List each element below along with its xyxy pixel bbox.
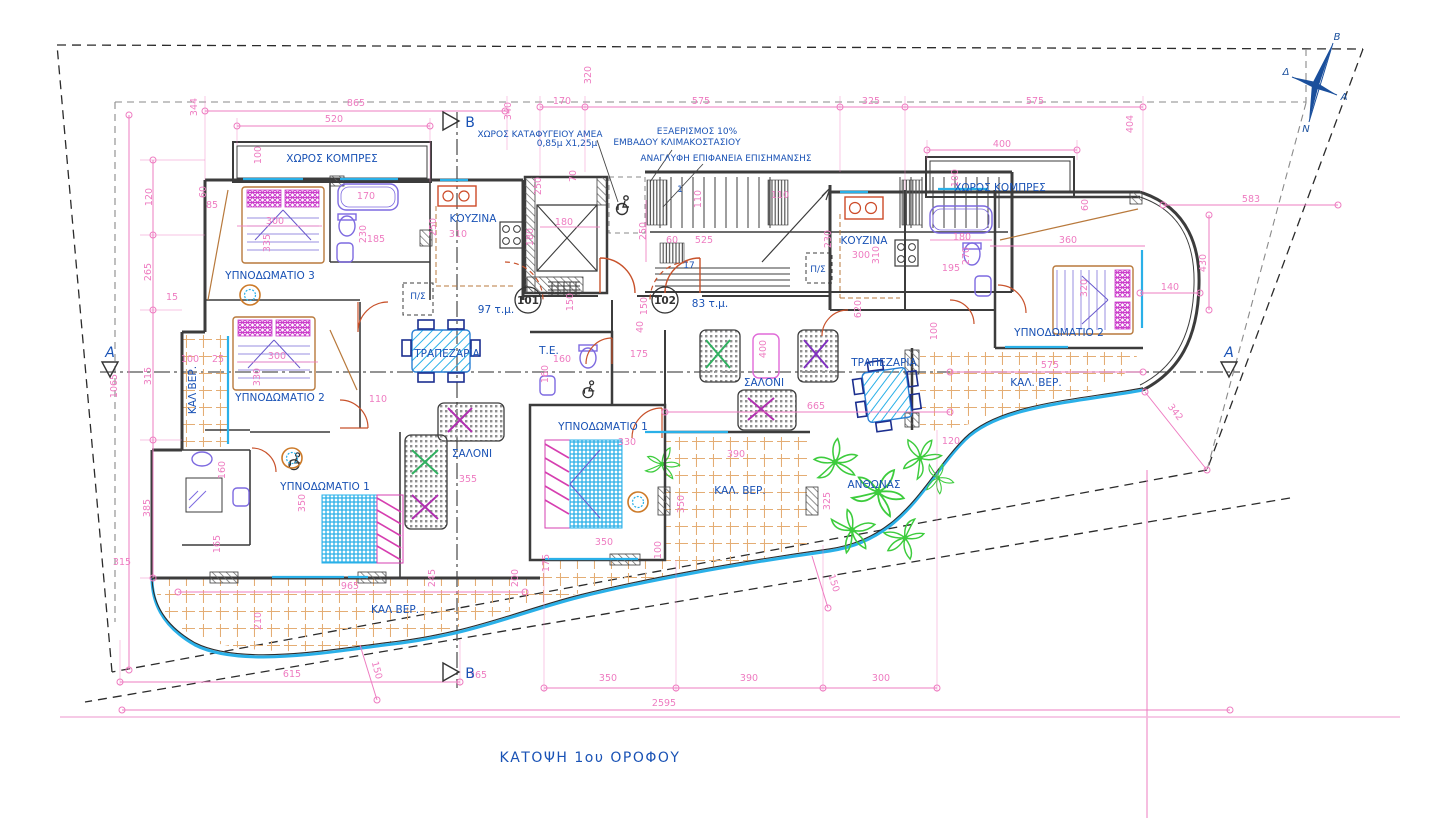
dim: 335 <box>262 234 273 252</box>
dim: 185 <box>367 234 385 245</box>
room-label-kitchen-a: ΚΟΥΖΙΝΑ <box>450 213 498 225</box>
room-label-veranda-right: ΚΑΛ. ΒΕΡ. <box>1010 377 1061 389</box>
dim: 175 <box>541 554 552 572</box>
apartment-102-area: 83 τ.μ. <box>692 298 728 310</box>
bedroom2b-bed <box>1053 266 1133 334</box>
dim: 165 <box>212 535 223 553</box>
room-label-closet-b: Π/Σ <box>810 265 826 275</box>
dim: 965 <box>341 581 359 592</box>
dim: 120 <box>942 436 960 447</box>
dim: 575 <box>1041 360 1059 371</box>
room-label-closet-a: Π/Σ <box>410 292 426 302</box>
compass-north-arrow: Β Ν Α Δ <box>1282 32 1348 135</box>
dim: 320 <box>583 66 594 84</box>
annotation-notes: ΧΩΡΟΣ ΚΑΤΑΦΥΓΕΙΟΥ ΑΜΕΑ 0,85μ Χ1,25μ ΕΞΑΕ… <box>478 127 812 164</box>
dim: 620 <box>853 300 864 318</box>
dim: 310 <box>871 246 882 264</box>
dim: 583 <box>1242 194 1260 205</box>
room-label-bedroom3-a: ΥΠΝΟΔΩΜΑΤΙΟ 3 <box>224 270 315 282</box>
dim: 110 <box>693 190 704 208</box>
dim: 665 <box>807 401 825 412</box>
dim: 404 <box>1125 115 1136 133</box>
section-marker-b-top: B <box>443 112 475 131</box>
dim: 250 <box>533 177 544 195</box>
room-label-compres-left: ΧΩΡΟΣ ΚΟΜΠΡΕΣ <box>286 153 378 165</box>
dim: 390 <box>740 673 758 684</box>
apartment-101-area: 97 τ.μ. <box>478 304 514 316</box>
dim: 100 <box>253 146 264 164</box>
compass-west-label: Δ <box>1282 67 1290 78</box>
dim: 350 <box>595 537 613 548</box>
dim: 160 <box>217 461 228 479</box>
dim: 400 <box>758 340 769 358</box>
dim: 390 <box>727 449 745 460</box>
dim: 265 <box>143 263 154 281</box>
dim: 300 <box>872 673 890 684</box>
dim: 340 <box>503 102 514 120</box>
dim: 195 <box>942 263 960 274</box>
room-label-dining-a: ΤΡΑΠΕΖΑΡΙΑ <box>413 348 480 360</box>
dim: 40 <box>635 321 646 333</box>
dim: 70 <box>568 170 579 182</box>
dim: 60 <box>666 235 678 246</box>
dim: 270 <box>961 247 972 265</box>
dim: 350 <box>676 495 687 513</box>
bedroom1b-bed <box>545 440 622 528</box>
room-label-veranda-left: ΚΑΛ ΒΕΡ. <box>187 366 199 414</box>
dim: 300 <box>266 216 284 227</box>
dim: 430 <box>1198 254 1209 272</box>
dim: 865 <box>347 98 365 109</box>
section-b-top-label: B <box>465 115 475 131</box>
stair-number-first: 1 <box>677 185 683 195</box>
dim: 150 <box>369 660 384 680</box>
dim: 120 <box>144 188 155 206</box>
bedroom1a-bed <box>322 495 403 563</box>
note-vent-line1: ΕΞΑΕΡΙΣΜΟΣ 10% <box>657 127 738 137</box>
apartment-102-number: 102 <box>654 295 676 307</box>
note-tactile: ΑΝΑΓΛΥΦΗ ΕΠΙΦΑΝΕΙΑ ΕΠΙΣΗΜΑΝΣΗΣ <box>640 154 812 164</box>
dim: 575 <box>692 96 710 107</box>
dim: 180 <box>953 232 971 243</box>
dim: 320 <box>1079 279 1090 297</box>
dim: 385 <box>142 499 153 517</box>
room-label-bedroom2-a: ΥΠΝΟΔΩΜΑΤΙΟ 2 <box>234 392 325 404</box>
dim: 100 <box>950 169 961 187</box>
dim: 180 <box>525 228 536 246</box>
room-label-veranda-mid: ΚΑΛ. ΒΕΡ. <box>714 485 765 497</box>
dim: 342 <box>1165 402 1185 423</box>
dim: 330 <box>252 368 263 386</box>
room-label-planter: ΑΝΘΩΝΑΣ <box>848 479 901 491</box>
dim: 360 <box>1059 235 1077 246</box>
apartment-102-tag: 102 83 τ.μ. <box>652 287 728 313</box>
drawing-title: ΚΑΤΟΨΗ 1ου ΟΡΟΦΟΥ <box>500 750 681 766</box>
dim: 325 <box>862 96 880 107</box>
compass-south-label: Ν <box>1302 124 1310 135</box>
compass-east-label: Α <box>1340 92 1348 103</box>
compass-north-label: Β <box>1334 32 1341 43</box>
dim: 330 <box>618 437 636 448</box>
dim: 150 <box>825 573 841 594</box>
dim: 310 <box>449 229 467 240</box>
room-label-kitchen-b: ΚΟΥΖΙΝΑ <box>841 235 889 247</box>
dim: 180 <box>555 217 573 228</box>
dim: 300 <box>268 351 286 362</box>
room-label-bedroom2-b: ΥΠΝΟΔΩΜΑΤΙΟ 2 <box>1013 327 1104 339</box>
section-a-left-label: A <box>104 345 115 361</box>
dim: 2595 <box>652 698 676 709</box>
room-label-dining-b: ΤΡΑΠΕΖΑΡΙΑ <box>850 357 917 369</box>
dim: 210 <box>253 612 264 630</box>
sofa-set-a <box>405 403 504 529</box>
dim: 15 <box>166 292 178 303</box>
dim: 150 <box>565 293 576 311</box>
apartment-101-number: 101 <box>517 295 539 307</box>
dim: 315 <box>143 367 154 385</box>
floor-plan-sheet: 101 97 τ.μ. 102 83 τ.μ. ΧΩΡΟΣ ΚΟΜΠΡΕΣ ΧΩ… <box>0 0 1454 820</box>
floor-plan-drawing: 101 97 τ.μ. 102 83 τ.μ. ΧΩΡΟΣ ΚΟΜΠΡΕΣ ΧΩ… <box>0 0 1454 820</box>
stair-number-last: 17 <box>683 261 694 271</box>
room-label-living-b: ΣΑΛΟΝΙ <box>744 377 784 389</box>
dim: 150 <box>639 297 650 315</box>
dim: 250 <box>428 218 439 236</box>
dim: 170 <box>357 191 375 202</box>
dim: 100 <box>653 541 664 559</box>
dim: 175 <box>630 349 648 360</box>
dim: 315 <box>113 557 131 568</box>
note-refuge-line2: 0,85μ Χ1,25μ <box>537 139 598 149</box>
room-label-veranda-bottom: ΚΑΛ ΒΕΡ. <box>371 604 419 616</box>
dim: 110 <box>369 394 387 405</box>
dim: 160 <box>553 354 571 365</box>
dim: 170 <box>553 96 571 107</box>
dim: 245 <box>427 569 438 587</box>
room-label-living-a: ΣΑΛΟΝΙ <box>452 448 492 460</box>
dim: 160 <box>540 365 551 383</box>
dim: 615 <box>283 669 301 680</box>
dim: 100 <box>181 354 199 365</box>
dim: 355 <box>459 474 477 485</box>
room-label-compres-right: ΧΩΡΟΣ ΚΟΜΠΡΕΣ <box>954 182 1046 194</box>
dim: 350 <box>599 673 617 684</box>
dim: 85 <box>206 200 218 211</box>
dim: 60 <box>1080 199 1091 211</box>
dim: 1065 <box>109 374 120 398</box>
dim: 344 <box>189 98 200 116</box>
dim: 300 <box>852 250 870 261</box>
wheelchair-icon <box>617 196 630 215</box>
section-b-bottom-label: B <box>465 666 475 682</box>
section-a-right-label: A <box>1223 345 1234 361</box>
dim: 520 <box>325 114 343 125</box>
dim: 110 <box>771 190 789 201</box>
room-label-bedroom1-b: ΥΠΝΟΔΩΜΑΤΙΟ 1 <box>557 421 648 433</box>
dim: 140 <box>1161 282 1179 293</box>
dim: 575 <box>1026 96 1044 107</box>
dim: 250 <box>638 222 649 240</box>
dim: 100 <box>929 322 940 340</box>
dim: 25 <box>212 354 224 365</box>
dim: 325 <box>822 492 833 510</box>
dim: 350 <box>297 494 308 512</box>
dim: 200 <box>510 569 521 587</box>
dim: 525 <box>695 235 713 246</box>
room-label-bedroom1-a: ΥΠΝΟΔΩΜΑΤΙΟ 1 <box>279 481 370 493</box>
note-vent-line2: ΕΜΒΑΔΟΥ ΚΛΙΜΑΚΟΣΤΑΣΙΟΥ <box>613 138 741 148</box>
dim: 60 <box>198 186 209 198</box>
wheelchair-icon-wc <box>583 381 594 398</box>
dim: 230 <box>823 230 834 248</box>
dim: 400 <box>993 139 1011 150</box>
